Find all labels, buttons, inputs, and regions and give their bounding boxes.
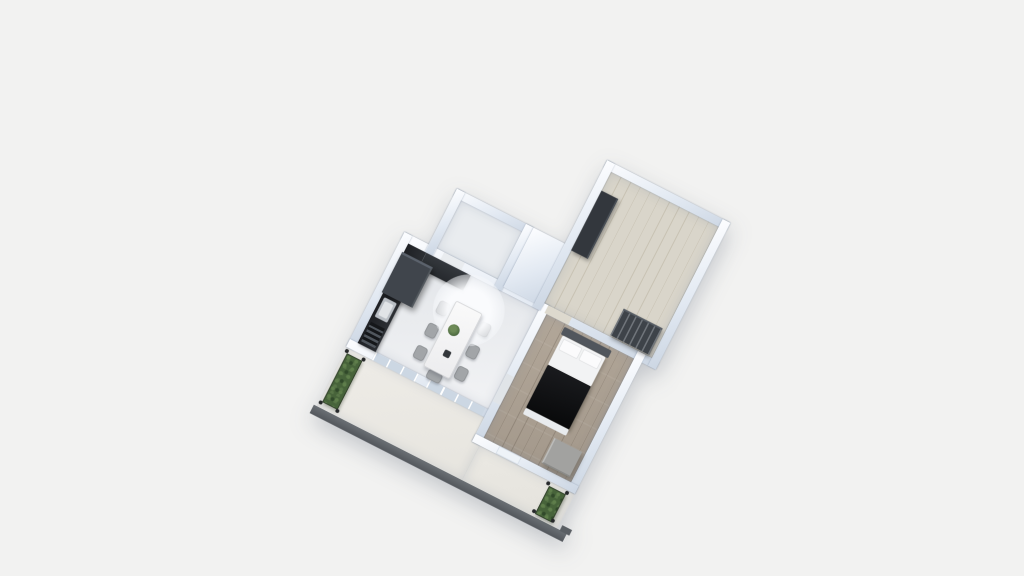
floorplan-canvas[interactable] bbox=[0, 0, 1024, 576]
floorplan-3d-view[interactable] bbox=[308, 91, 732, 545]
apartment-plan bbox=[308, 91, 732, 545]
